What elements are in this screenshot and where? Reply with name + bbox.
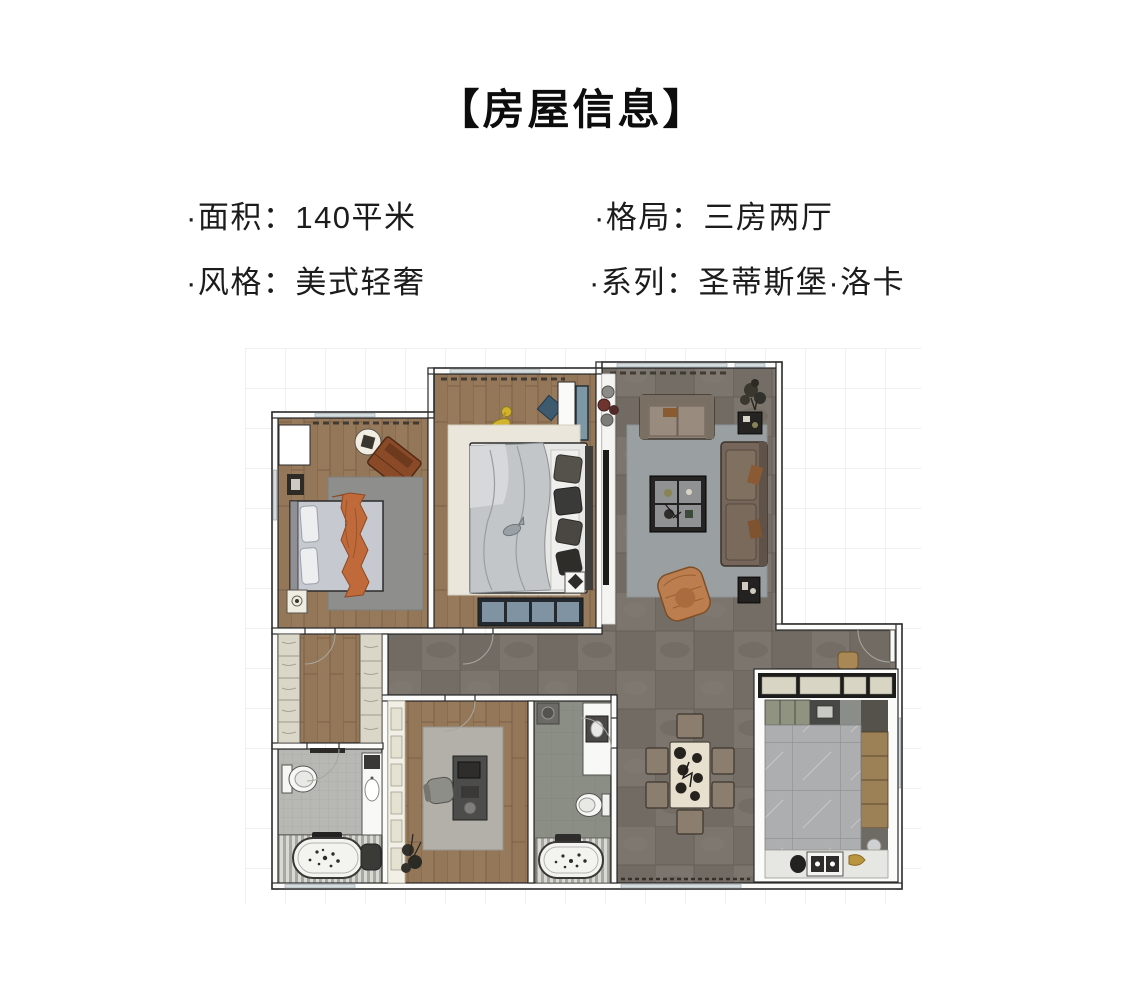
info-layout: ·格局：三房两厅 — [594, 192, 833, 237]
side-table-bottom — [738, 577, 760, 603]
bookshelf-column — [388, 701, 405, 883]
kitchen-bottom-counter — [765, 850, 888, 878]
foot-bench — [478, 598, 583, 626]
vanity1 — [362, 753, 382, 835]
dark-pillow — [554, 487, 583, 516]
tv-console — [603, 450, 609, 585]
dark-appliance — [790, 855, 806, 873]
kitchen-top-counter — [765, 700, 840, 725]
vanity2 — [583, 703, 611, 775]
pillow — [300, 505, 319, 542]
master-bed — [290, 493, 383, 597]
toilet1 — [282, 765, 317, 793]
wardrobe-left — [278, 634, 300, 743]
toilet2 — [576, 794, 610, 817]
laptop — [458, 762, 480, 778]
wardrobe-right — [360, 634, 382, 743]
window-living-top2 — [735, 364, 765, 368]
stool — [838, 652, 858, 669]
washer — [537, 703, 559, 724]
window-bath1-bottom — [285, 885, 355, 889]
window-dining-bottom — [621, 885, 741, 889]
info-series: ·系列：圣蒂斯堡·洛卡 — [589, 257, 905, 302]
promo-page: 【房屋信息】 ·面积：140平米 ·格局：三房两厅 ·风格：美式轻奢 ·系列：圣… — [0, 0, 1145, 1000]
dining-table — [670, 742, 710, 808]
second-bed — [470, 443, 593, 593]
sofa-loveseat — [640, 395, 714, 439]
window-bedroom2-top — [450, 370, 540, 374]
floor-plan-image — [265, 358, 905, 893]
info-style: ·风格：美式轻奢 — [186, 257, 425, 302]
side-table-top — [738, 412, 762, 434]
window-master-left — [273, 470, 277, 520]
page-title: 【房屋信息】 — [0, 76, 1145, 137]
dark-pillow — [555, 518, 583, 546]
info-area: ·面积：140平米 — [186, 192, 417, 237]
window-living-top — [617, 364, 727, 368]
kitchen-floor-tiles — [765, 725, 861, 850]
pillow — [300, 547, 319, 584]
dark-pillow — [553, 454, 582, 483]
tub-seat — [361, 844, 381, 870]
window-master-top — [315, 414, 375, 418]
desk — [453, 756, 487, 820]
sofa-long — [721, 442, 767, 566]
closet-niche — [279, 425, 310, 465]
coffee-table — [650, 476, 706, 532]
shelf — [310, 748, 345, 753]
bar-counter — [758, 673, 896, 698]
headboard — [290, 501, 298, 591]
headboard — [585, 446, 593, 590]
